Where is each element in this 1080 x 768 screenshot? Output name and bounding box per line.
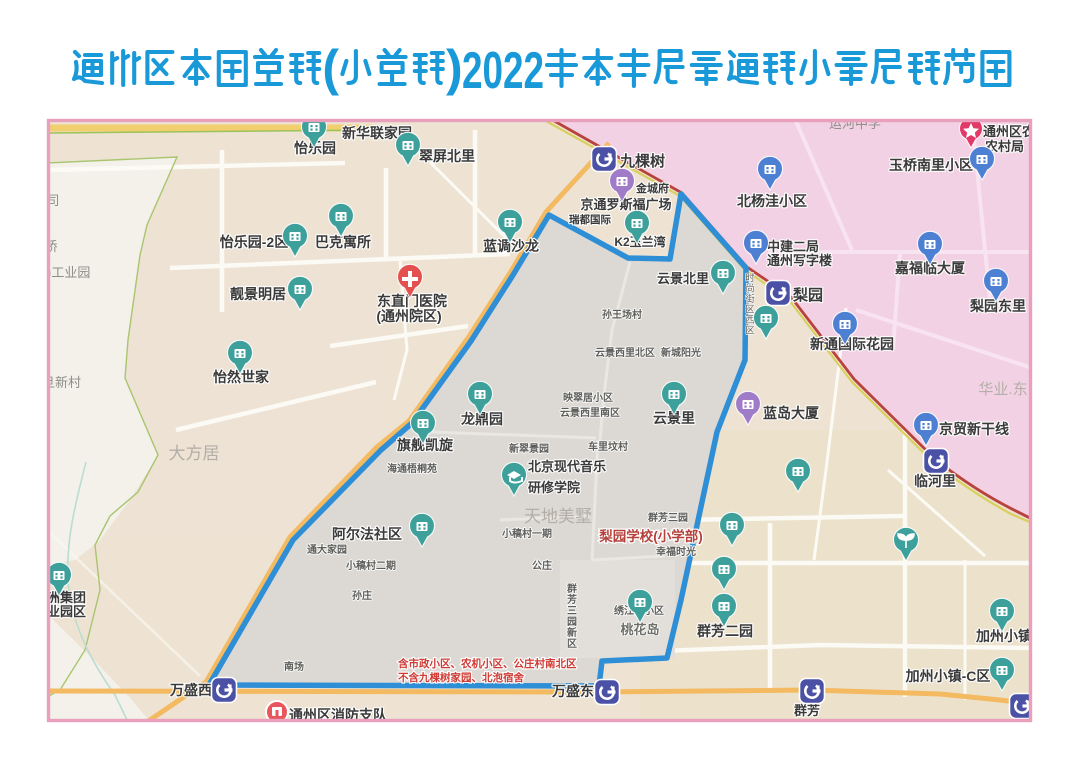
svg-text:映翠居小区: 映翠居小区 bbox=[563, 391, 613, 404]
svg-text:): ) bbox=[446, 40, 463, 96]
svg-text:通大家园: 通大家园 bbox=[307, 543, 347, 556]
svg-text:梨园学校(小学部): 梨园学校(小学部) bbox=[598, 528, 703, 544]
svg-text:大方居: 大方居 bbox=[169, 444, 220, 463]
svg-text:华业.东: 华业.东 bbox=[978, 381, 1027, 398]
svg-text:海通梧桐苑: 海通梧桐苑 bbox=[387, 462, 437, 475]
svg-text:万盛西: 万盛西 bbox=[169, 682, 212, 698]
svg-text:业园区: 业园区 bbox=[47, 604, 86, 619]
svg-text:公庄: 公庄 bbox=[532, 559, 552, 572]
svg-text:蓝岛大厦: 蓝岛大厦 bbox=[763, 405, 820, 421]
svg-text:(通州院区): (通州院区) bbox=[376, 308, 441, 324]
svg-text:天地美墅: 天地美墅 bbox=[524, 507, 592, 526]
svg-text:新通国际花园: 新通国际花园 bbox=[810, 336, 894, 352]
svg-text:车里坟村: 车里坟村 bbox=[588, 440, 628, 453]
svg-text:新翠景园: 新翠景园 bbox=[509, 442, 549, 455]
svg-text:梨园: 梨园 bbox=[792, 286, 823, 304]
svg-text:玉桥南里小区: 玉桥南里小区 bbox=[889, 157, 973, 173]
svg-text:怡乐园-2区: 怡乐园-2区 bbox=[220, 234, 288, 250]
svg-text:阿尔法社区: 阿尔法社区 bbox=[332, 526, 402, 542]
svg-text:孙庄: 孙庄 bbox=[352, 589, 372, 602]
svg-text:加州小镇-C区: 加州小镇-C区 bbox=[905, 668, 991, 684]
svg-text:九棵树: 九棵树 bbox=[619, 152, 665, 170]
svg-text:桥: 桥 bbox=[44, 239, 57, 254]
svg-text:通州写字楼: 通州写字楼 bbox=[767, 253, 832, 268]
svg-text:云景西里南区: 云景西里南区 bbox=[560, 406, 620, 419]
svg-text:翠屏北里: 翠屏北里 bbox=[419, 148, 475, 164]
svg-text:时尚街区西区: 时尚街区西区 bbox=[745, 272, 755, 337]
svg-text:新城阳光: 新城阳光 bbox=[661, 346, 701, 359]
svg-text:靓景明居: 靓景明居 bbox=[230, 286, 286, 302]
svg-text:不含九棵树家园、北泡宿舍: 不含九棵树家园、北泡宿舍 bbox=[398, 671, 524, 684]
svg-text:2022: 2022 bbox=[462, 42, 544, 100]
svg-text:京通罗斯福广场: 京通罗斯福广场 bbox=[580, 197, 671, 212]
svg-text:群芳三园: 群芳三园 bbox=[648, 511, 688, 524]
svg-text:瑞都国际: 瑞都国际 bbox=[569, 213, 611, 226]
svg-text:群芳三园新区: 群芳三园新区 bbox=[567, 582, 577, 650]
svg-text:运河中学: 运河中学 bbox=[829, 116, 881, 131]
svg-text:中建二局: 中建二局 bbox=[767, 239, 819, 254]
svg-text:万盛东: 万盛东 bbox=[551, 683, 594, 699]
svg-text:孙王场村: 孙王场村 bbox=[602, 308, 642, 321]
svg-text:含市政小区、农机小区、公庄村南北区: 含市政小区、农机小区、公庄村南北区 bbox=[398, 657, 577, 670]
svg-text:(: ( bbox=[322, 40, 339, 96]
svg-text:云景西里北区: 云景西里北区 bbox=[595, 346, 655, 359]
svg-text:南场: 南场 bbox=[284, 660, 304, 673]
svg-text:群芳: 群芳 bbox=[794, 703, 820, 718]
svg-text:临河里: 临河里 bbox=[914, 473, 956, 489]
svg-text:金城府: 金城府 bbox=[635, 181, 669, 195]
svg-text:云景北里: 云景北里 bbox=[657, 271, 709, 286]
svg-text:京贸新干线: 京贸新干线 bbox=[939, 421, 1009, 437]
svg-text:北杨洼小区: 北杨洼小区 bbox=[737, 193, 807, 209]
svg-text:巴克寓所: 巴克寓所 bbox=[315, 234, 371, 250]
svg-text:小稿村一期: 小稿村一期 bbox=[501, 527, 552, 540]
svg-text:洲集团: 洲集团 bbox=[47, 590, 86, 605]
svg-text:研修学院: 研修学院 bbox=[528, 480, 580, 495]
svg-text:北京现代音乐: 北京现代音乐 bbox=[528, 459, 606, 474]
svg-text:通州区农: 通州区农 bbox=[983, 124, 1035, 139]
svg-text:桃花岛: 桃花岛 bbox=[620, 622, 659, 637]
svg-text:)工业园: )工业园 bbox=[47, 265, 90, 280]
svg-text:幸福时光: 幸福时光 bbox=[656, 545, 696, 558]
svg-text:小稿村二期: 小稿村二期 bbox=[345, 559, 396, 572]
